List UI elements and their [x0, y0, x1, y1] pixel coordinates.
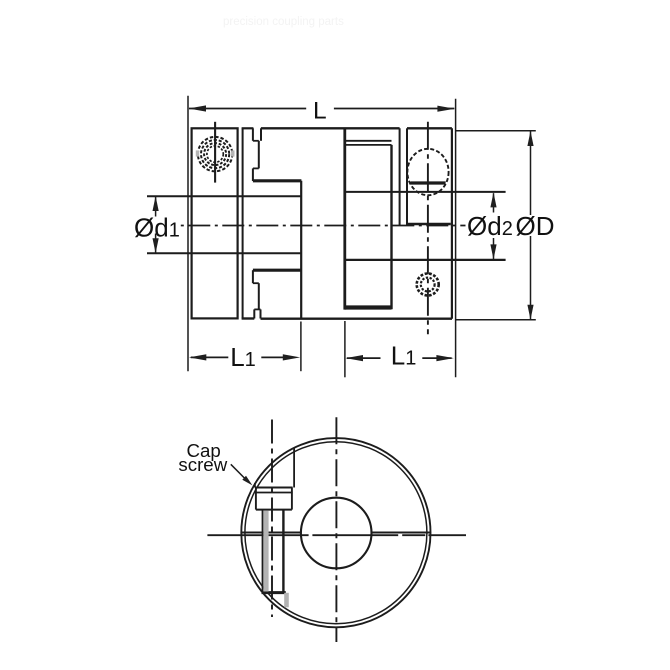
svg-text:ØD: ØD: [516, 211, 555, 241]
svg-text:L1: L1: [230, 342, 256, 372]
svg-text:Ød2: Ød2: [467, 211, 513, 241]
svg-text:precision coupling parts: precision coupling parts: [223, 16, 344, 28]
svg-text:Ød1: Ød1: [134, 213, 180, 243]
svg-text:screw: screw: [178, 454, 227, 475]
svg-text:L: L: [313, 98, 327, 125]
svg-text:L1: L1: [391, 341, 417, 371]
